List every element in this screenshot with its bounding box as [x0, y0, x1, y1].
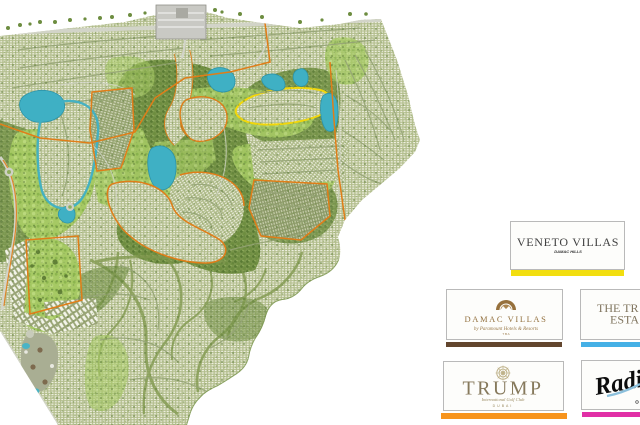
- svg-text:T B A: T B A: [502, 332, 509, 336]
- svg-text:DUBAI: DUBAI: [493, 404, 514, 408]
- svg-text:International Golf Club: International Golf Club: [481, 397, 526, 402]
- svg-text:DAMAC VILLAS: DAMAC VILLAS: [464, 314, 547, 324]
- svg-text:VENETO VILLAS: VENETO VILLAS: [517, 235, 619, 249]
- svg-text:ESTA: ESTA: [610, 313, 639, 327]
- svg-text:DAMAC HILLS: DAMAC HILLS: [554, 249, 582, 254]
- svg-text:Radi: Radi: [591, 366, 640, 401]
